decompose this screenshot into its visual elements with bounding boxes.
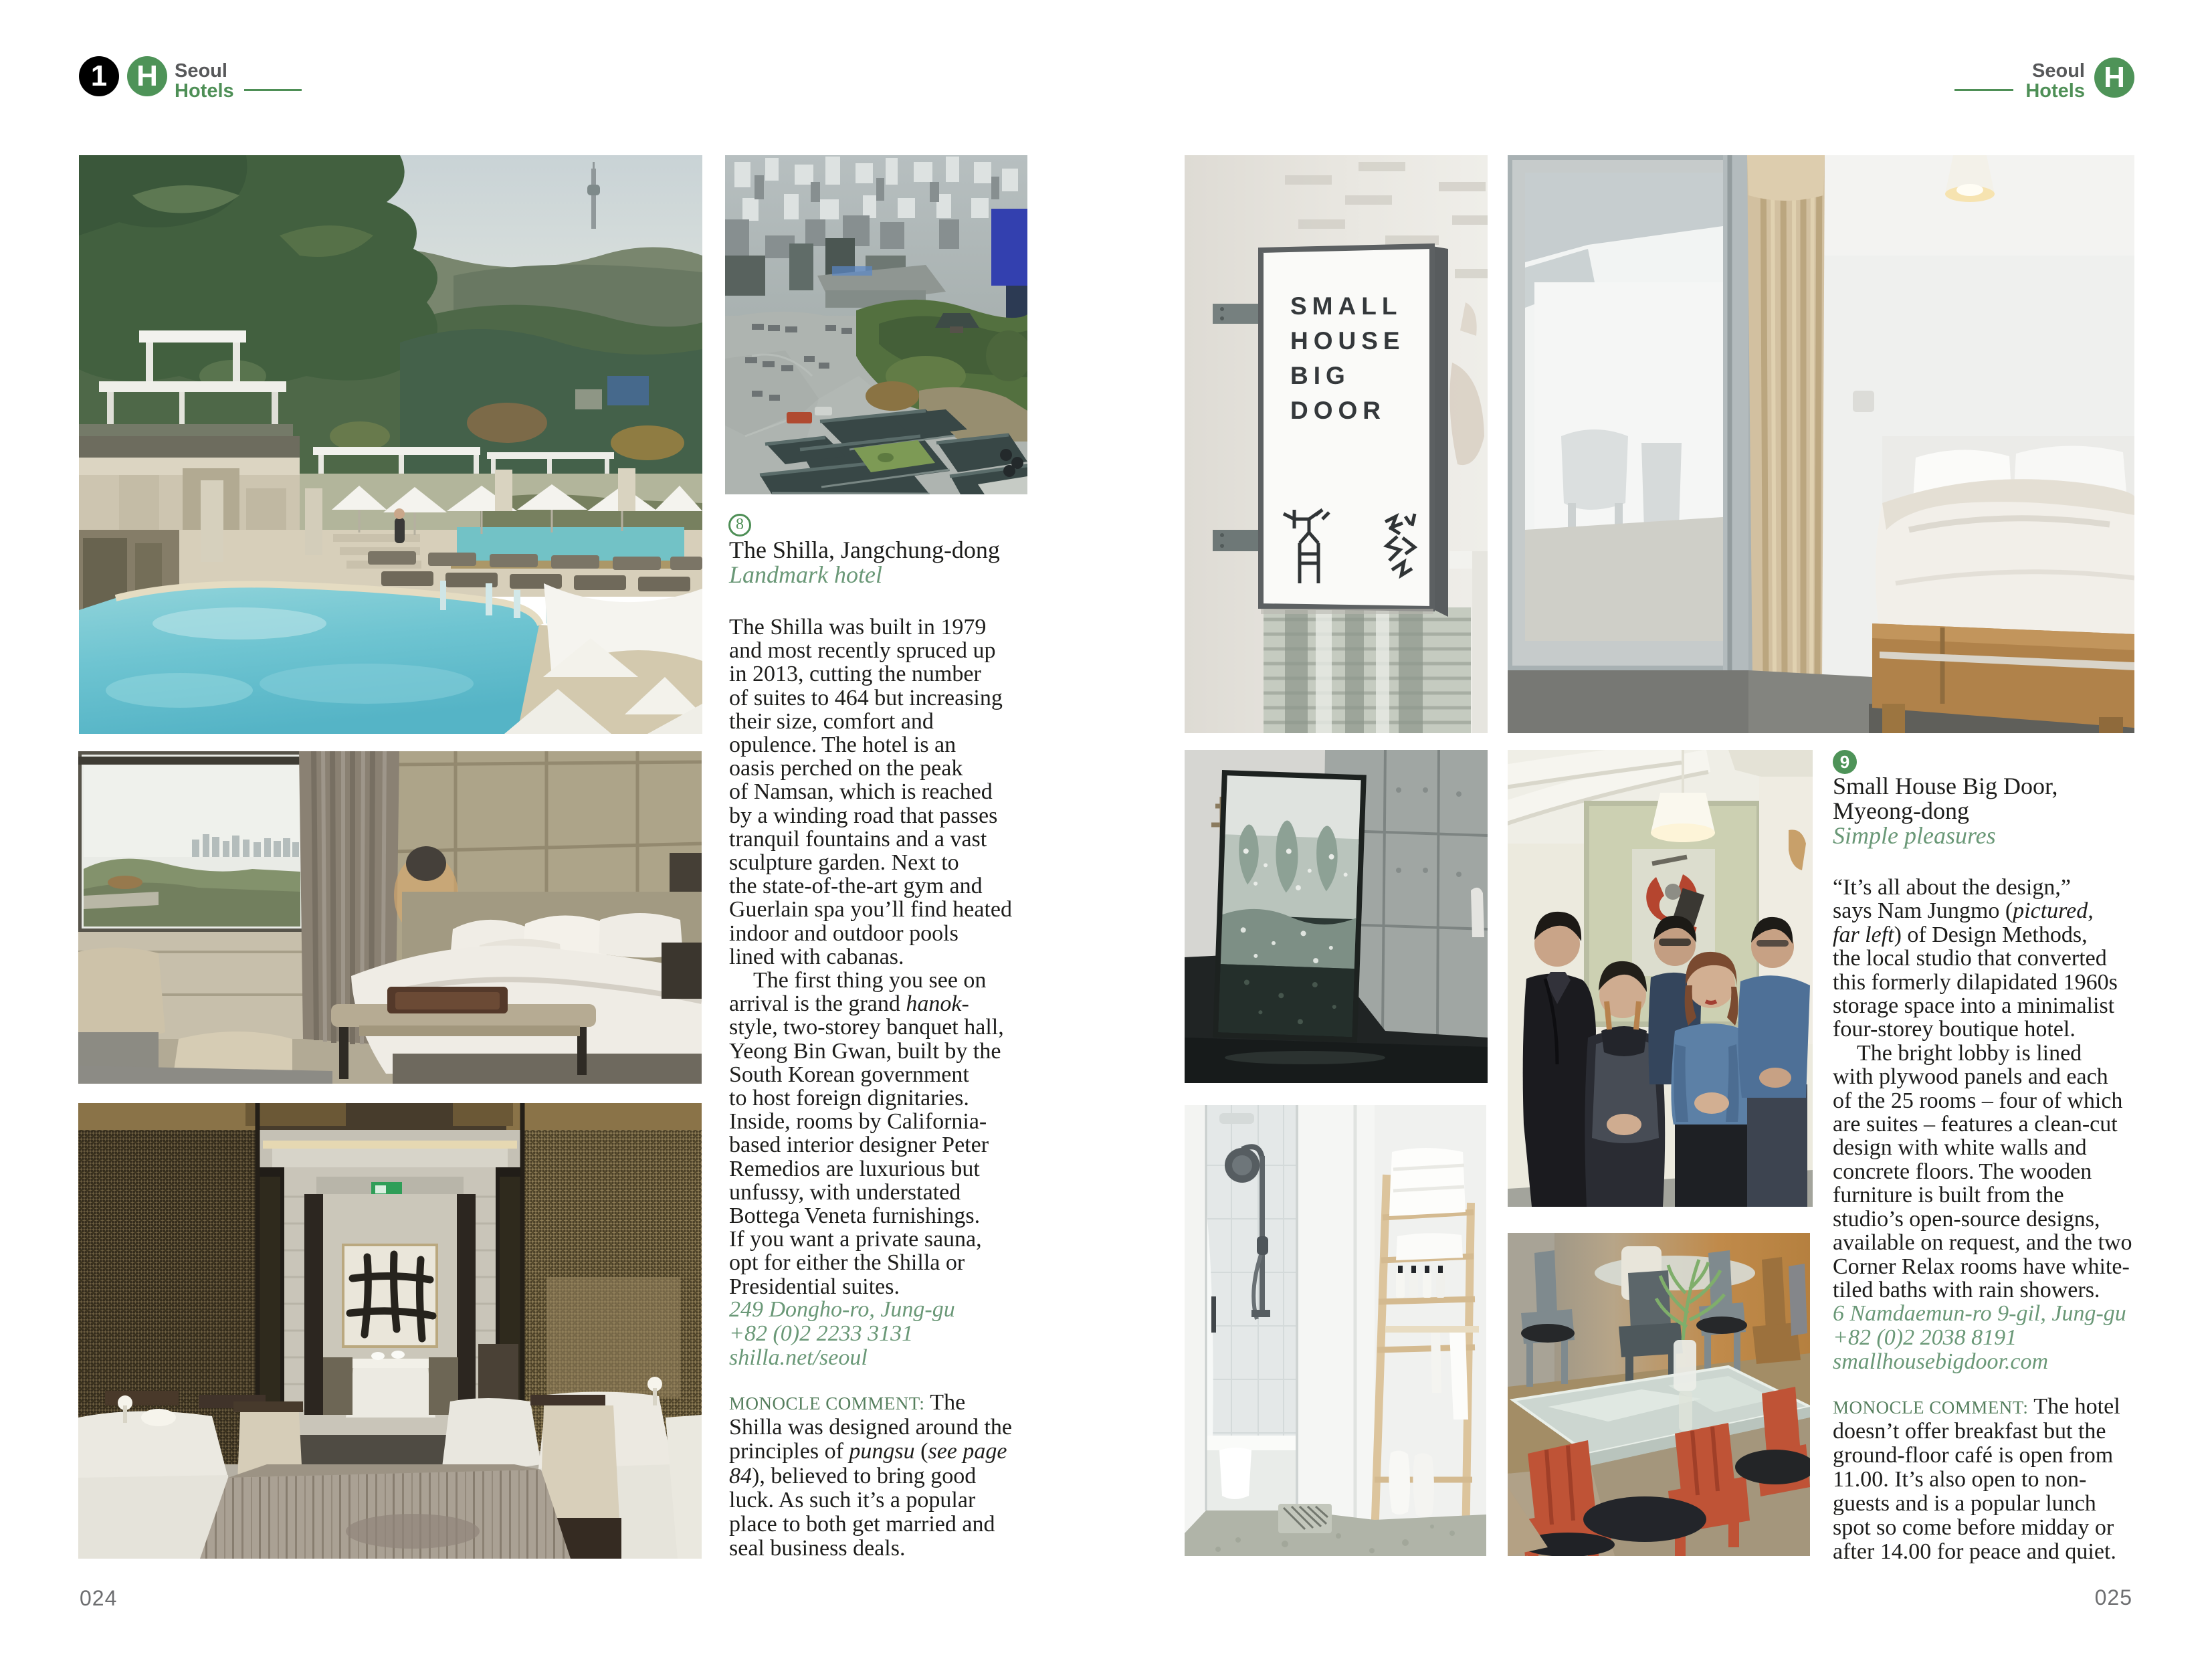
svg-text:BIG: BIG — [1290, 362, 1350, 389]
svg-text:DOOR: DOOR — [1290, 397, 1386, 424]
svg-text:HOUSE: HOUSE — [1290, 327, 1405, 355]
svg-text:SMALL: SMALL — [1290, 292, 1402, 320]
